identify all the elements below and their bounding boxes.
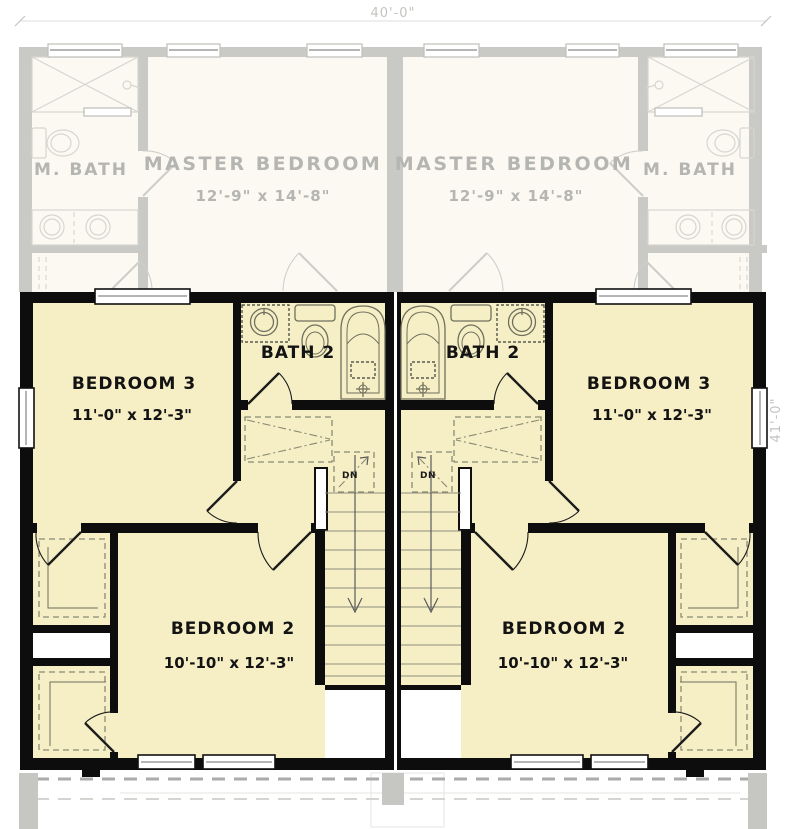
shower-door	[84, 108, 131, 116]
linen-wall-bottom	[33, 658, 110, 666]
mbath-wall-upper	[138, 57, 148, 151]
top-dimension: 40'-0"	[15, 6, 771, 26]
wall-top-left-unit	[20, 292, 394, 303]
wall-right	[753, 292, 766, 770]
mbath-wall-lower	[138, 197, 148, 292]
room-label-bedroom2-left: BEDROOM 2	[171, 619, 295, 639]
room-size-master-left: 12'-9" x 14'-8"	[195, 187, 330, 205]
room-label-bath2-left: BATH 2	[261, 343, 335, 363]
overall-depth-dimension: 41'-0"	[769, 397, 784, 442]
upper-wall-right	[749, 47, 762, 292]
closet-side-wall-upper	[110, 533, 118, 713]
wall-top-right-unit	[397, 292, 766, 303]
upper-floor-faded: M. BATH MASTER BEDROOM 12'-9" x 14'-8" M…	[19, 44, 767, 292]
porch-below-outline	[19, 770, 767, 829]
wall-left	[20, 292, 33, 770]
room-label-bedroom3-right: BEDROOM 3	[587, 374, 711, 394]
stair-half-wall	[315, 468, 327, 530]
porch-post-center	[382, 773, 404, 805]
bath2-wall-stub	[241, 400, 248, 410]
linen-chase	[33, 633, 110, 658]
bath2-bottom-wall	[292, 400, 385, 410]
vanity-wall	[19, 245, 138, 253]
room-label-bath2-right: BATH 2	[446, 343, 520, 363]
overall-width-dimension: 40'-0"	[370, 6, 415, 21]
party-wall-left	[385, 292, 394, 770]
main-floor: BEDROOM 3 11'-0" x 12'-3" BATH 2 BEDROOM…	[19, 289, 767, 770]
room-label-mbath-left: M. BATH	[34, 160, 128, 180]
porch-post-left	[19, 773, 38, 829]
room-label-master-left: MASTER BEDROOM	[144, 153, 383, 175]
step-stub-right	[686, 770, 704, 777]
stair-dn-label-right: DN	[420, 471, 436, 481]
room-label-bedroom2-right: BEDROOM 2	[502, 619, 626, 639]
room-size-bedroom3-left: 11'-0" x 12'-3"	[72, 406, 192, 424]
step-stub-left	[82, 770, 100, 777]
stair-void-edge	[325, 685, 385, 690]
linen-wall-top	[33, 625, 110, 633]
stair-open-below	[325, 690, 385, 758]
bedroom3-hall-wall	[233, 303, 241, 481]
room-size-bedroom2-right: 10'-10" x 12'-3"	[498, 654, 628, 672]
floor-plan-svg: 40'-0" 41'-0"	[0, 0, 800, 829]
room-size-master-right: 12'-9" x 14'-8"	[448, 187, 583, 205]
stair-dn-label-left: DN	[342, 471, 358, 481]
bedroom2-top-wall-b	[81, 523, 258, 533]
bedroom2-top-wall-a	[33, 523, 37, 533]
room-label-master-right: MASTER BEDROOM	[395, 153, 634, 175]
stair-wall	[315, 533, 325, 685]
room-label-mbath-right: M. BATH	[643, 160, 737, 180]
upper-wall-left	[19, 47, 32, 292]
floor-plan-page: 40'-0" 41'-0"	[0, 0, 800, 829]
closet-side-wall-lower	[110, 752, 118, 758]
porch-post-right	[748, 773, 767, 829]
room-size-bedroom2-left: 10'-10" x 12'-3"	[164, 654, 294, 672]
room-size-bedroom3-right: 11'-0" x 12'-3"	[592, 406, 712, 424]
room-label-bedroom3-left: BEDROOM 3	[72, 374, 196, 394]
